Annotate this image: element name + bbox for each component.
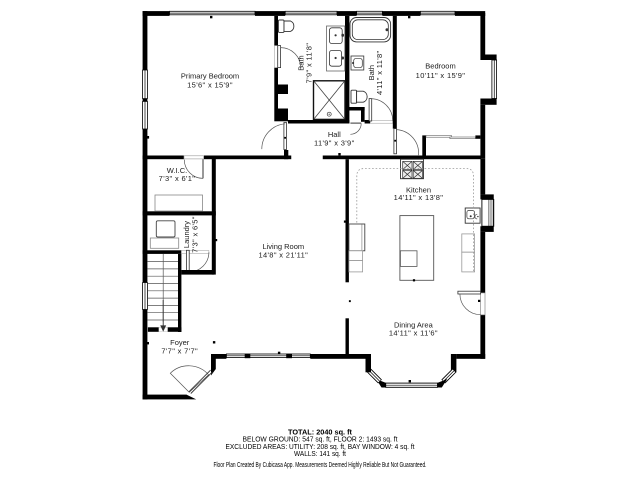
svg-text:Floor Plan Created By Cubicasa: Floor Plan Created By Cubicasa App. Meas… [214, 462, 427, 469]
svg-text:7'3" x 6'5": 7'3" x 6'5" [191, 216, 200, 253]
svg-text:11'9" x 3'9": 11'9" x 3'9" [314, 138, 355, 147]
svg-text:14'8" x 21'11": 14'8" x 21'11" [258, 251, 308, 260]
svg-text:4'11" x 11'8": 4'11" x 11'8" [375, 50, 384, 95]
svg-text:7'7" x 7'7": 7'7" x 7'7" [161, 347, 198, 356]
svg-text:10'11" x 15'9": 10'11" x 15'9" [416, 71, 466, 80]
svg-text:Primary Bedroom: Primary Bedroom [181, 72, 239, 81]
svg-text:7'9" x 11'8": 7'9" x 11'8" [304, 43, 313, 84]
svg-text:EXCLUDED AREAS: UTILITY: 208 s: EXCLUDED AREAS: UTILITY: 208 sq. ft, BAY… [226, 444, 415, 451]
svg-text:WALLS: 141 sq. ft: WALLS: 141 sq. ft [294, 451, 346, 458]
svg-text:7'3" x 6'1": 7'3" x 6'1" [159, 174, 196, 183]
svg-text:15'6" x 15'9": 15'6" x 15'9" [187, 80, 233, 89]
svg-text:14'11" x 13'8": 14'11" x 13'8" [394, 193, 444, 202]
svg-text:BELOW GROUND: 547 sq. ft, FLOO: BELOW GROUND: 547 sq. ft, FLOOR 2: 1493 … [243, 437, 398, 444]
svg-text:TOTAL: 2040 sq. ft: TOTAL: 2040 sq. ft [288, 430, 353, 437]
svg-text:Bedroom: Bedroom [425, 62, 455, 71]
svg-text:14'11" x 11'6": 14'11" x 11'6" [389, 328, 438, 337]
